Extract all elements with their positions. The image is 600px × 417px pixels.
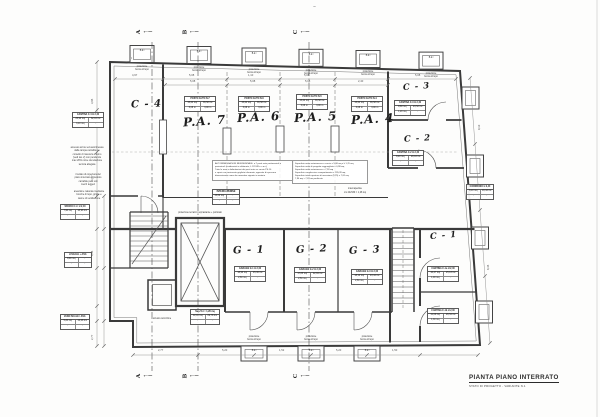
- lightwells-right: [462, 87, 493, 323]
- section-marker-c-bottom: C←–: [294, 372, 308, 379]
- section-letter: A: [136, 373, 142, 377]
- section-letter: A: [136, 29, 142, 33]
- dim-label: 2,77: [92, 335, 95, 340]
- dim-label: 1,52: [279, 350, 284, 353]
- dim-label: 8,35: [488, 265, 491, 270]
- room-data-table-g3: GARAGE G-3 H 2,4018,10 mq43,44 mc2,60 mq…: [351, 269, 383, 285]
- lightwells-bottom: [241, 346, 380, 361]
- lightwell-caption: proiezionebocca di lupo: [128, 66, 156, 72]
- room-data-table-g2: GARAGE G-2 H 2,4017,85 mq42,84 mc2,50 mq…: [294, 267, 326, 283]
- lightwell-caption: proiezionebocca di lupo: [417, 73, 445, 79]
- lightwell-caption: proiezionebocca di lupo: [240, 336, 268, 342]
- room-data-table-pa4: POSTO AUTO N.415,24 mq36,58 mc5,08 m3,00…: [351, 96, 383, 112]
- section-arrow-icon: ←–: [299, 372, 308, 379]
- data-table-left-4: VANO SCALE / ASC.5,20 mq12,48 mc--: [60, 314, 90, 330]
- room-label-pa5: P.A. 5: [294, 110, 338, 124]
- section-letter: C: [293, 373, 299, 377]
- data-table-left-3: H SCALE + ASC.8,90 mq---: [64, 252, 92, 268]
- notes-block-b: Superficie netta autorimessa e corsie = …: [292, 160, 368, 184]
- room-data-table-pa5: POSTO AUTO N.515,24 mq36,58 mc5,08 m3,00…: [296, 94, 328, 110]
- room-label-g2: G - 2: [296, 244, 328, 256]
- section-marker-b-bottom: B←–: [183, 372, 198, 379]
- drawing-title: PIANTA PIANO INTERRATO: [469, 374, 559, 383]
- room-label-pa7: P.A. 7: [183, 114, 227, 129]
- room-data-table-g1: GARAGE G-1 H 2,4018,90 mq45,36 mc2,60 mq…: [234, 266, 266, 282]
- section-marker-c-top: C←–: [294, 28, 308, 35]
- section-arrow-icon: ←–: [142, 28, 151, 35]
- room-data-table-pa6: POSTO AUTO N.615,24 mq36,58 mc5,08 m3,00…: [238, 96, 270, 112]
- room-data-table-c1a: CANTINA C-1a H 2,4010,47 mq25,13 mc1,00 …: [427, 266, 459, 282]
- lightwell-box-label: B.d.l: [305, 350, 317, 353]
- data-table-left-2: SPAZIO C.U. H 2,407,90 mq18,96 mc--: [60, 204, 90, 220]
- lightwell-box-label: B.d.l: [248, 53, 260, 56]
- central-shaft: [176, 218, 224, 306]
- room-data-table-c3: CANTINA C-3 H 2,409,80 mq23,52 mc1,20 mq…: [394, 100, 426, 116]
- section-letter: C: [293, 29, 299, 33]
- room-label-pa4: P.A. 4: [351, 112, 395, 126]
- section-arrow-icon: ←–: [299, 28, 308, 35]
- dim-label: 2,40: [358, 81, 363, 84]
- lightwell-box-label: B.d.l: [305, 54, 317, 57]
- section-arrow-icon: ←–: [189, 28, 198, 35]
- dim-label: 3,95: [92, 99, 95, 104]
- dim-label: 5,08: [190, 81, 195, 84]
- dim-label: 4,45: [92, 251, 95, 256]
- data-table-intercapedine: INTERCAPEDINE15,66 mq---: [212, 189, 240, 205]
- section-arrow-icon: ←–: [142, 372, 151, 379]
- section-letter: B: [182, 29, 188, 34]
- room-label-c2: C - 2: [404, 134, 432, 144]
- section-arrow-icon: ←–: [189, 372, 198, 379]
- right-staircase: [392, 228, 414, 312]
- room-label-c3: C - 3: [403, 82, 431, 92]
- room-data-table-c1b: CANTINA C-1b H 2,4011,06 mq26,54 mc1,30 …: [427, 308, 459, 324]
- room-data-table-pa7: POSTO AUTO N.715,24 mq36,58 mc5,08 m3,00…: [184, 96, 216, 112]
- floor-plan-linework: [0, 0, 600, 417]
- data-table-corridor: CORRIDOIO H 2,408,10 mq19,44 mc--: [466, 184, 494, 200]
- lightwell-caption: proiezionebocca di lupo: [297, 336, 325, 342]
- lightwell-caption: proiezionebocca di lupo: [297, 70, 325, 76]
- room-label-g3: G - 3: [349, 245, 381, 257]
- section-marker-a-bottom: A←–: [137, 372, 151, 379]
- lightwell-box-label: B.d.l: [193, 51, 205, 54]
- dim-label: 5,08: [189, 75, 194, 78]
- lightwell-caption: proiezionebocca di lupo: [354, 71, 382, 77]
- lightwell-caption: proiezionebocca di lupo: [185, 67, 213, 73]
- section-letter: B: [182, 373, 188, 378]
- margin-note-1: accesso ai box ed autorimessadalla rampa…: [56, 146, 118, 166]
- dim-label: 5,20: [336, 350, 341, 353]
- dim-label: 1,50: [392, 350, 397, 353]
- section-marker-a-top: A←–: [137, 28, 151, 35]
- section-marker-b-top: B←–: [183, 28, 198, 35]
- room-data-table-c4: CANTINA C-4 H 2,4025,90 mq62,16 mc3,10 m…: [72, 112, 104, 128]
- drawing-subtitle: STATO DI PROGETTO - VARIANTE N.1: [469, 384, 559, 388]
- room-label-pa6: P.A. 6: [237, 110, 281, 124]
- dim-label: 4,97: [132, 75, 137, 78]
- scanned-floor-plan-sheet: A←– B←– C←– A←– B←– C←– C - 4 P.A. 7 P.A…: [0, 0, 600, 417]
- section-cut-lines: [152, 42, 309, 371]
- lightwell-caption: proiezionebocca di lupo: [353, 336, 381, 342]
- room-label-c4: C - 4: [131, 99, 162, 110]
- shaft-projection-label: proiezione terrazzo soprastante + portic…: [176, 212, 224, 215]
- lightwell-box-label: B.d.l: [425, 57, 437, 60]
- dim-label: 5,20: [222, 350, 227, 353]
- dim-label: 5,08: [250, 81, 255, 84]
- lightwell-caption: proiezionebocca di lupo: [240, 69, 268, 75]
- title-block: PIANTA PIANO INTERRATO STATO DI PROGETTO…: [469, 374, 559, 388]
- room-label-g1: G - 1: [233, 245, 265, 256]
- margin-note-3: areazione naturale mediantebocche di lup…: [64, 190, 114, 200]
- scan-speck: [313, 6, 316, 7]
- lightwell-box-label: B.d.l: [248, 350, 260, 353]
- notes-block-a: AUTORIMESSA NON RESIDENZIALE: n.7 posti …: [212, 160, 294, 181]
- margin-note-2: il solaio di copertura delpiano interrat…: [60, 173, 116, 186]
- lightwell-box-label: B.d.l: [362, 55, 374, 58]
- dim-label: 5,08: [305, 81, 310, 84]
- lightwell-box-label: B.d.l: [361, 350, 373, 353]
- intercapedine-size-label: cm 24x530 = 1,28 mq: [338, 192, 372, 195]
- dim-label: 1,10: [248, 75, 253, 78]
- room-label-c1: C - 1: [430, 231, 458, 242]
- door-swings: [141, 102, 446, 330]
- dim-label: 9,10: [479, 125, 482, 130]
- scivolo-label: scivolo carrozzine: [146, 318, 178, 321]
- scan-speck: [130, 57, 132, 59]
- data-table-shaft: Sup.Tot = 1,28 mq12,41 mq29,78 mc--: [190, 309, 220, 325]
- dim-label: 2,77: [158, 350, 163, 353]
- room-data-table-c2: CANTINA C-2 H 2,408,40 mq20,16 mc--: [392, 150, 424, 166]
- left-staircase: [110, 212, 176, 310]
- lightwell-box-label: B.d.l: [136, 50, 148, 53]
